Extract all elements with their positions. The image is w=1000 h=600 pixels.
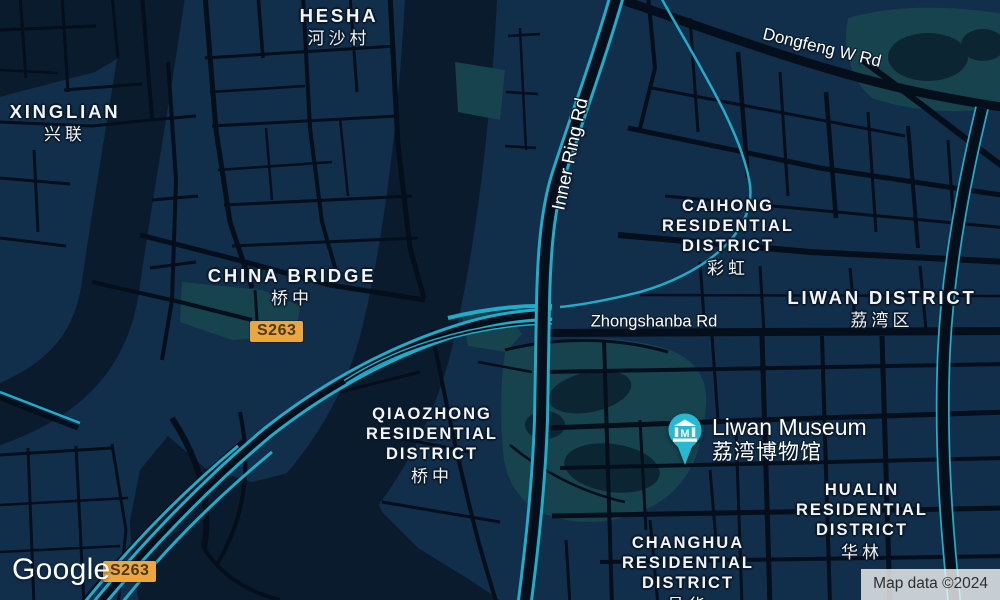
place-label-line: 桥中 (366, 466, 498, 488)
place-label-line: CHINA BRIDGE (208, 266, 377, 286)
place-label-line: RESIDENTIAL (796, 500, 928, 520)
place-label-line: 兴联 (10, 124, 121, 146)
place-label-liwan-district: LIWAN DISTRICT 荔湾区 (787, 288, 976, 332)
place-label-line: CHANGHUA (622, 533, 754, 553)
place-label-line: 河沙村 (300, 28, 379, 50)
place-label-line: 昌华 (622, 595, 754, 600)
place-label-hualin: HUALIN RESIDENTIAL DISTRICT 华林 (796, 480, 928, 564)
place-label-china-bridge: CHINA BRIDGE 桥中 (208, 266, 377, 310)
place-label-line: RESIDENTIAL (662, 216, 794, 236)
museum-pin-icon: M (666, 412, 704, 468)
place-label-line: HESHA (300, 6, 379, 26)
place-label-hesha: HESHA 河沙村 (300, 6, 379, 50)
place-label-line: HUALIN (796, 480, 928, 500)
poi-name: Liwan Museum (712, 414, 867, 440)
route-badge-s263: S263 (103, 561, 156, 582)
place-label-line: LIWAN DISTRICT (787, 288, 976, 308)
map-canvas[interactable]: HESHA 河沙村 XINGLIAN 兴联 CHINA BRIDGE 桥中 CA… (0, 0, 1000, 600)
place-label-xinglian: XINGLIAN 兴联 (10, 102, 121, 146)
place-label-line: DISTRICT (662, 236, 794, 256)
road-label-zhongshanba-rd: Zhongshanba Rd (591, 313, 718, 332)
place-label-line: DISTRICT (622, 573, 754, 593)
route-badge-s263: S263 (250, 321, 303, 342)
place-label-caihong: CAIHONG RESIDENTIAL DISTRICT 彩虹 (662, 196, 794, 280)
place-label-line: XINGLIAN (10, 102, 121, 122)
poi-label-liwan-museum[interactable]: Liwan Museum 荔湾博物馆 (712, 414, 867, 466)
place-label-line: RESIDENTIAL (622, 553, 754, 573)
place-label-line: RESIDENTIAL (366, 424, 498, 444)
place-label-changhua: CHANGHUA RESIDENTIAL DISTRICT 昌华 (622, 533, 754, 600)
place-label-line: 桥中 (208, 288, 377, 310)
map-attribution: Map data ©2024 (861, 569, 1000, 600)
google-logo[interactable]: Google (12, 553, 111, 587)
place-label-line: CAIHONG (662, 196, 794, 216)
poi-name-zh: 荔湾博物馆 (712, 440, 867, 466)
svg-text:M: M (680, 428, 689, 440)
place-label-line: DISTRICT (796, 520, 928, 540)
place-label-qiaozhong: QIAOZHONG RESIDENTIAL DISTRICT 桥中 (366, 404, 498, 488)
place-label-line: 荔湾区 (787, 310, 976, 332)
place-label-line: 彩虹 (662, 258, 794, 280)
place-label-line: QIAOZHONG (366, 404, 498, 424)
place-label-line: 华林 (796, 542, 928, 564)
place-label-line: DISTRICT (366, 444, 498, 464)
